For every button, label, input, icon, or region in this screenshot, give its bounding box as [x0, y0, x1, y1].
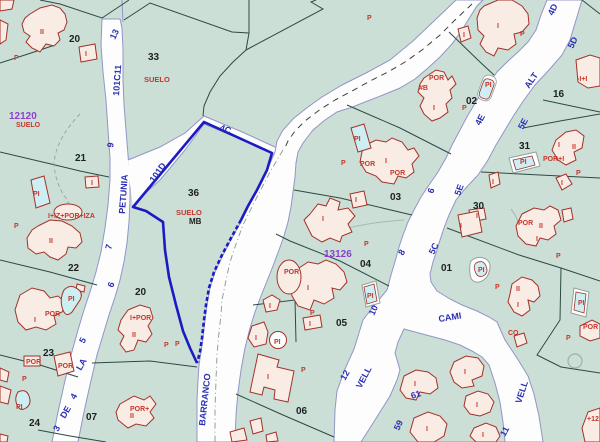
svg-text:07: 07 — [86, 412, 98, 423]
svg-text:I: I — [426, 426, 428, 433]
svg-text:SUELO: SUELO — [16, 122, 41, 129]
svg-text:P: P — [576, 170, 581, 177]
svg-text:06: 06 — [296, 406, 308, 417]
svg-text:I: I — [269, 303, 271, 310]
svg-text:I: I — [34, 317, 36, 324]
svg-text:30: 30 — [473, 201, 485, 212]
svg-text:PI: PI — [520, 159, 527, 166]
svg-text:+12: +12 — [587, 416, 599, 423]
svg-text:I: I — [476, 402, 478, 409]
svg-text:23: 23 — [43, 348, 55, 359]
svg-text:SUELO: SUELO — [176, 208, 202, 217]
svg-text:CO: CO — [508, 330, 519, 337]
svg-text:PI: PI — [33, 191, 40, 198]
svg-text:POR+I: POR+I — [543, 156, 564, 163]
svg-text:II: II — [132, 332, 136, 339]
svg-text:16: 16 — [553, 89, 565, 100]
svg-text:05: 05 — [336, 318, 348, 329]
svg-text:MB: MB — [189, 217, 202, 226]
svg-text:31: 31 — [519, 141, 531, 152]
svg-text:I: I — [558, 142, 560, 149]
svg-text:I: I — [309, 321, 311, 328]
svg-text:I: I — [561, 180, 563, 187]
svg-text:I: I — [482, 432, 484, 439]
svg-text:13126: 13126 — [324, 249, 352, 260]
svg-text:II: II — [130, 413, 134, 420]
svg-text:I: I — [85, 51, 87, 58]
svg-text:I: I — [414, 381, 416, 388]
svg-text:P: P — [367, 15, 372, 22]
svg-text:20: 20 — [135, 287, 147, 298]
svg-text:I: I — [464, 369, 466, 376]
svg-text:PI: PI — [16, 404, 23, 411]
svg-text:I: I — [385, 158, 387, 165]
svg-text:-I+I: -I+I — [577, 76, 587, 83]
svg-text:POR: POR — [58, 363, 73, 370]
svg-text:12120: 12120 — [9, 111, 37, 122]
svg-text:P: P — [14, 55, 19, 62]
svg-text:36: 36 — [188, 188, 200, 199]
svg-text:POR: POR — [390, 170, 405, 177]
svg-text:SUELO: SUELO — [144, 75, 170, 84]
svg-text:I+POR: I+POR — [130, 315, 151, 322]
svg-text:01: 01 — [441, 263, 453, 274]
svg-text:I+IZ+POR+IZA: I+IZ+POR+IZA — [48, 213, 95, 220]
svg-text:P: P — [495, 284, 500, 291]
svg-text:P: P — [175, 341, 180, 348]
svg-text:I: I — [267, 374, 269, 381]
svg-text:#B: #B — [419, 85, 428, 92]
svg-text:II: II — [572, 144, 576, 151]
svg-text:I: I — [91, 180, 93, 187]
svg-text:POR: POR — [360, 161, 375, 168]
svg-text:PI: PI — [274, 339, 281, 346]
svg-text:24: 24 — [29, 418, 41, 429]
svg-text:20: 20 — [69, 34, 81, 45]
svg-text:P: P — [556, 253, 561, 260]
svg-text:PI: PI — [367, 293, 374, 300]
svg-text:P: P — [520, 31, 525, 38]
svg-text:I: I — [536, 236, 538, 243]
svg-text:I: I — [497, 23, 499, 30]
svg-text:PI: PI — [68, 296, 75, 303]
svg-text:PI: PI — [478, 267, 485, 274]
svg-text:POR: POR — [429, 75, 444, 82]
svg-text:P: P — [566, 335, 571, 342]
svg-text:21: 21 — [75, 153, 87, 164]
svg-text:P: P — [14, 223, 19, 230]
svg-text:I: I — [322, 216, 324, 223]
svg-text:P: P — [364, 241, 369, 248]
svg-text:P: P — [164, 342, 169, 349]
svg-text:P: P — [462, 105, 467, 112]
svg-text:POR: POR — [518, 220, 533, 227]
svg-text:POR: POR — [284, 269, 299, 276]
svg-text:I: I — [476, 213, 478, 220]
svg-text:POR: POR — [45, 311, 60, 318]
svg-text:I: I — [355, 197, 357, 204]
svg-text:P: P — [341, 160, 346, 167]
svg-text:II: II — [40, 29, 44, 36]
svg-text:P: P — [22, 376, 27, 383]
svg-text:POR: POR — [583, 324, 598, 331]
svg-text:PI: PI — [485, 82, 492, 89]
svg-text:I: I — [460, 223, 462, 230]
svg-text:P: P — [301, 367, 306, 374]
svg-text:04: 04 — [360, 259, 372, 270]
svg-text:33: 33 — [148, 52, 160, 63]
svg-text:I: I — [517, 302, 519, 309]
svg-text:POR+: POR+ — [130, 406, 149, 413]
svg-text:I: I — [463, 32, 465, 39]
svg-text:PI: PI — [578, 300, 585, 307]
svg-text:II: II — [516, 286, 520, 293]
svg-text:22: 22 — [68, 263, 80, 274]
svg-text:I: I — [307, 285, 309, 292]
svg-text:I: I — [255, 335, 257, 342]
svg-text:02: 02 — [466, 96, 478, 107]
svg-text:PI: PI — [354, 136, 361, 143]
svg-text:I: I — [433, 105, 435, 112]
svg-text:II: II — [539, 223, 543, 230]
svg-text:POR: POR — [26, 359, 41, 366]
svg-text:I: I — [492, 179, 494, 186]
svg-text:II: II — [49, 238, 53, 245]
svg-text:P: P — [310, 310, 315, 317]
svg-text:03: 03 — [390, 192, 402, 203]
